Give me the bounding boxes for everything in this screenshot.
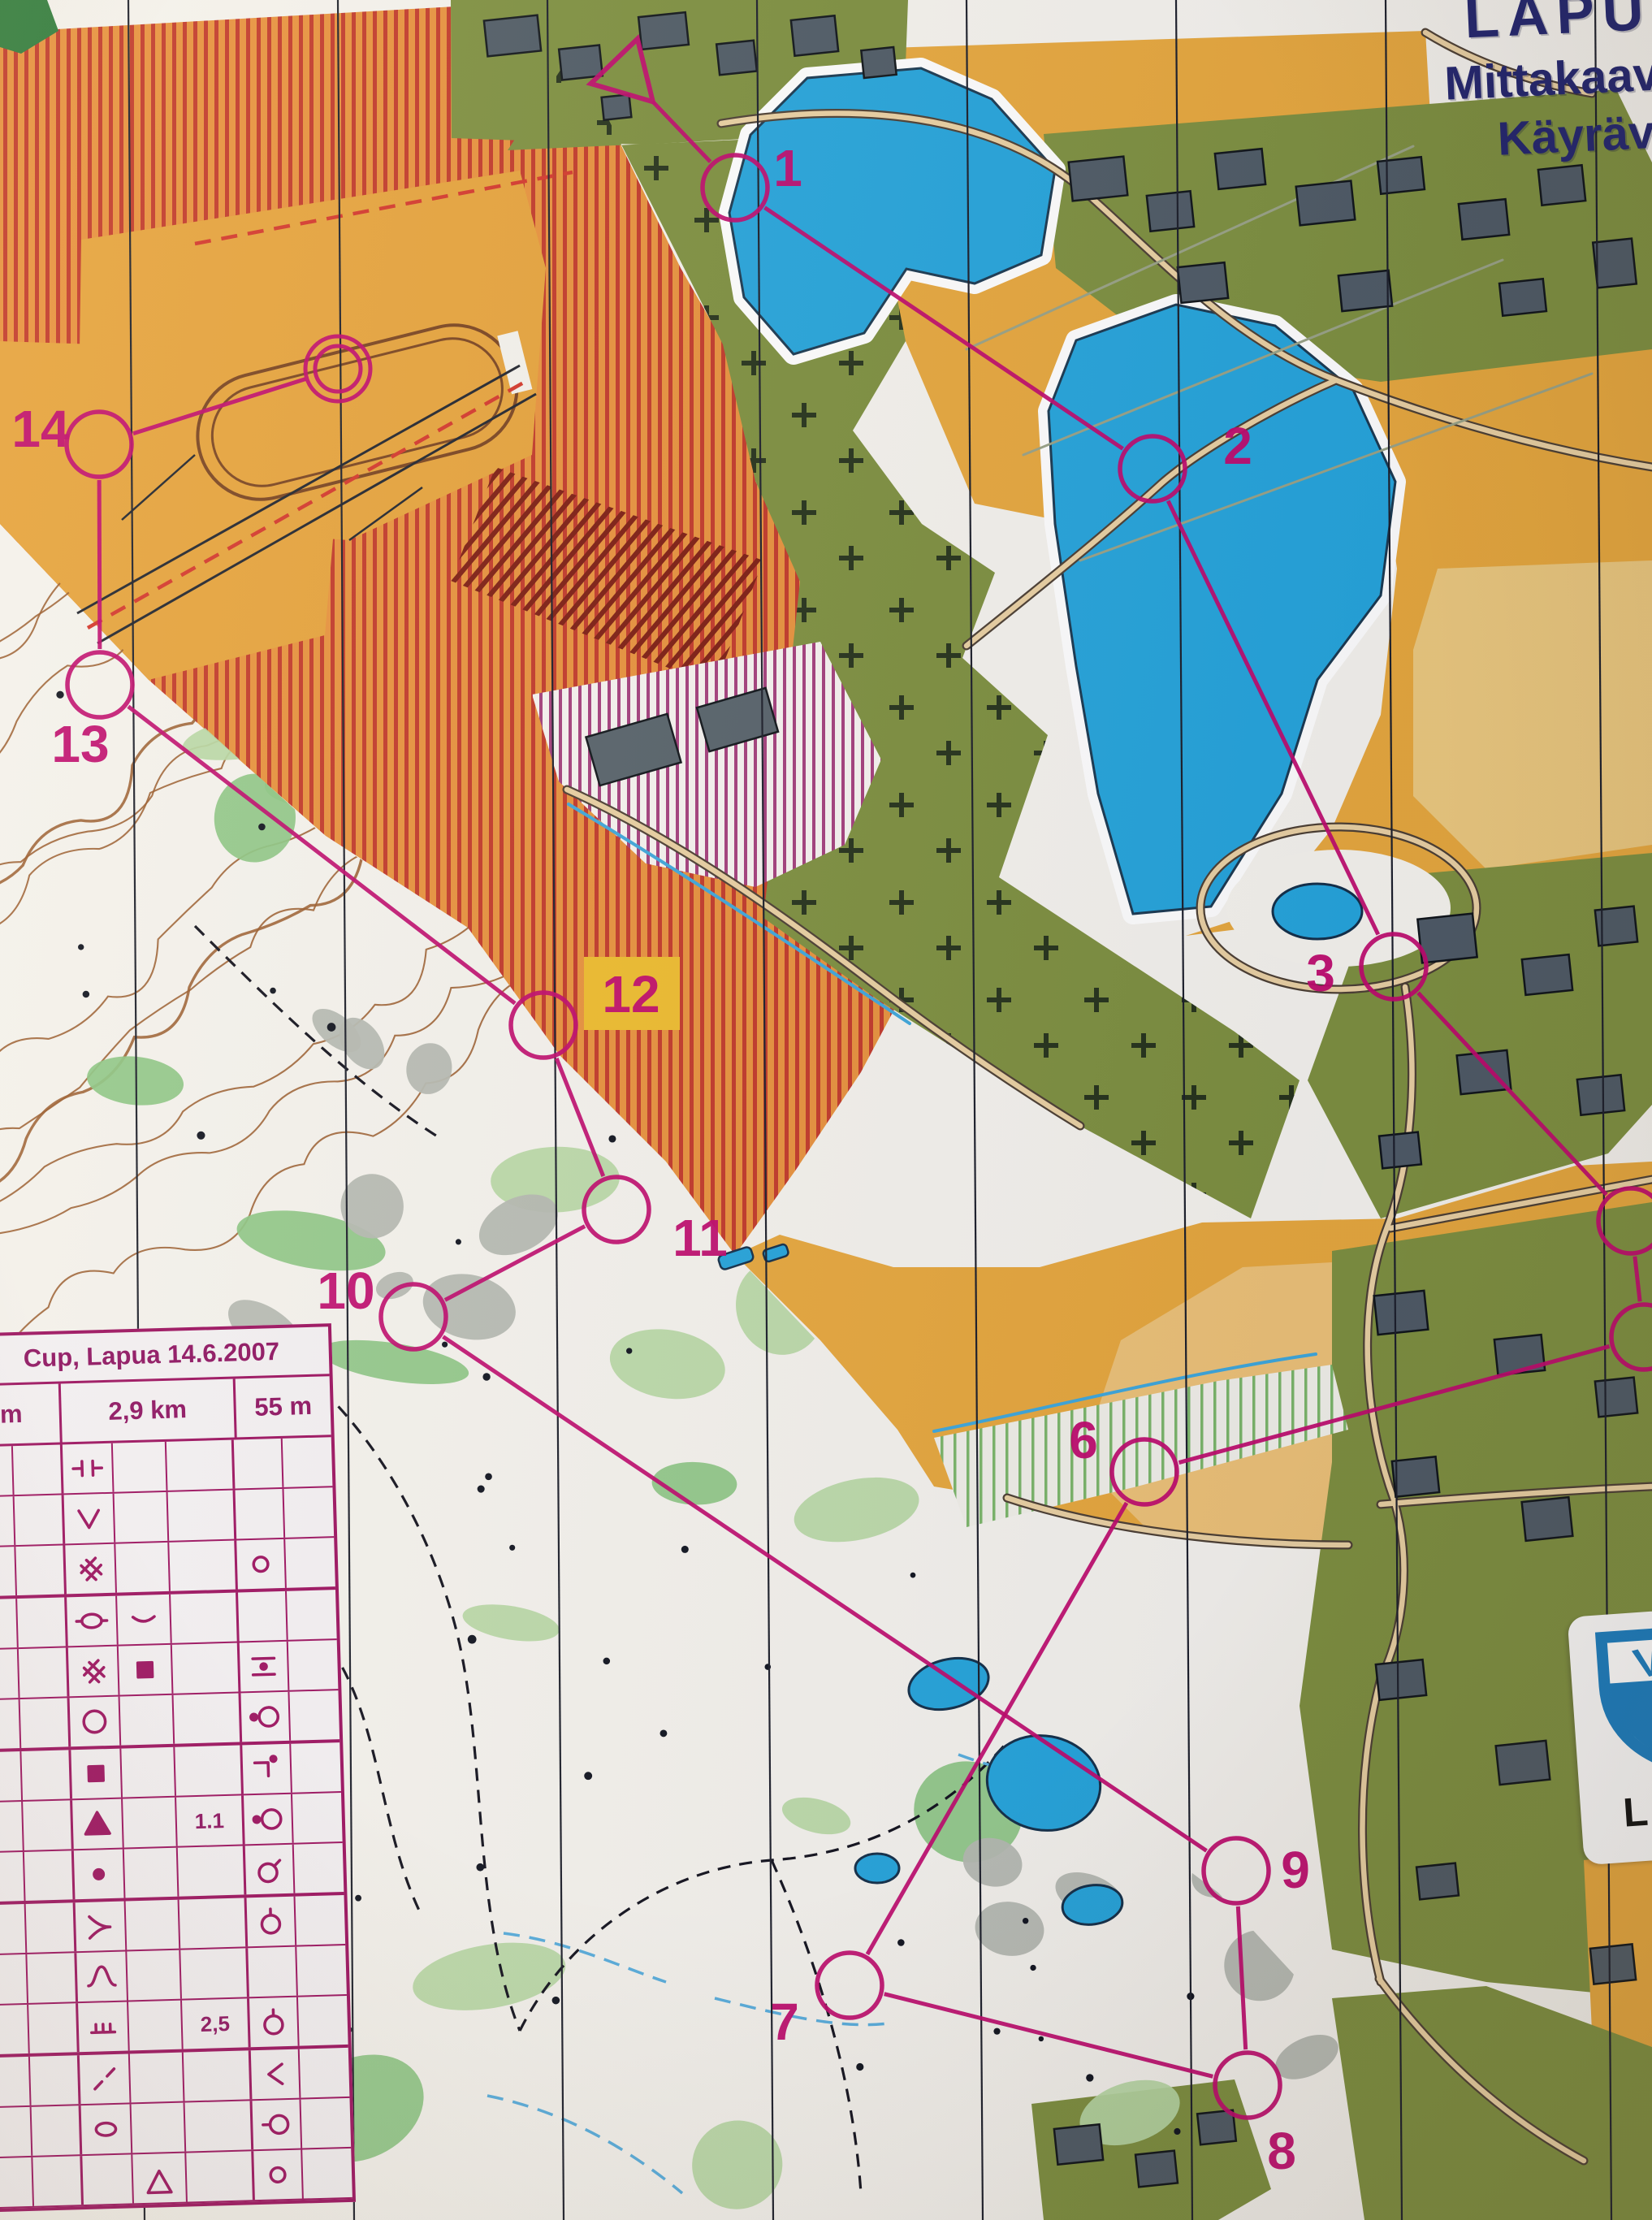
col-g — [245, 1845, 296, 1895]
symbol-circle — [76, 1703, 113, 1740]
symbol-square — [78, 1755, 115, 1792]
col-b — [21, 1750, 72, 1800]
col-d — [115, 1492, 170, 1543]
symbol-triangle — [79, 1806, 115, 1842]
pond-ring — [1273, 884, 1362, 939]
col-h — [294, 1843, 344, 1893]
col-h — [292, 1793, 343, 1843]
course-summary-row: m 2,9 km 55 m — [0, 1376, 331, 1448]
symbol-wall — [84, 2009, 121, 2045]
col-g — [253, 2150, 304, 2201]
col-ef — [166, 1440, 236, 1491]
control-number-14: 14 — [11, 400, 70, 458]
col-g — [236, 1539, 287, 1590]
col-a — [0, 1547, 17, 1597]
col-h — [291, 1742, 341, 1793]
col-c — [82, 2154, 134, 2205]
symbol-square — [127, 1651, 163, 1688]
symbol-circle-tick-w — [258, 2106, 295, 2143]
col-h — [283, 1487, 334, 1538]
col-h — [296, 1895, 346, 1945]
symbol-crossing — [69, 1450, 106, 1486]
col-d — [128, 2001, 184, 2051]
col-b — [27, 1953, 78, 2003]
col-a — [0, 1649, 20, 1699]
col-b — [30, 2055, 81, 2105]
col-h — [288, 1640, 339, 1690]
control-number-7: 7 — [770, 1993, 799, 2051]
course-climb: 55 m — [236, 1376, 331, 1437]
col-b — [19, 1647, 70, 1698]
col-b — [13, 1444, 64, 1495]
col-c — [68, 1647, 120, 1697]
symbol-hill — [84, 1958, 120, 1995]
description-row-15 — [0, 2149, 352, 2209]
symbol-between — [245, 1648, 282, 1685]
col-b — [15, 1495, 66, 1545]
col-ef — [184, 2050, 253, 2101]
symbol-circle-small — [259, 2157, 296, 2193]
col-c — [76, 1951, 128, 2001]
col-d — [119, 1645, 174, 1695]
symbol-dot-circle — [249, 1801, 286, 1837]
col-b — [15, 1545, 67, 1595]
col-b — [26, 1902, 77, 1953]
col-g — [251, 2049, 301, 2100]
symbol-less — [257, 2056, 293, 2092]
col-ef — [180, 1948, 249, 1998]
col-d — [113, 1442, 168, 1492]
symbol-tri-open — [141, 2160, 178, 2196]
col-d — [115, 1543, 171, 1593]
col-ef — [179, 1898, 249, 1948]
col-h — [285, 1538, 335, 1588]
col-h — [283, 1437, 333, 1487]
col-d — [123, 1798, 178, 1848]
col-g — [244, 1794, 294, 1845]
col-c — [67, 1596, 119, 1647]
col-ef — [169, 1541, 238, 1591]
col-ef — [171, 1592, 240, 1642]
col-h — [300, 2048, 350, 2098]
header-fragment: m — [0, 1383, 63, 1444]
col-b — [24, 1850, 76, 1901]
control-number-12: 12 — [602, 965, 660, 1023]
col-d — [132, 2153, 188, 2204]
symbol-oval — [88, 2111, 124, 2148]
control-number-11: 11 — [672, 1209, 728, 1267]
col-a — [0, 1852, 26, 1902]
symbol-dashes — [86, 2061, 123, 2097]
col-g — [248, 1947, 298, 1997]
col-ef: 2,5 — [182, 1998, 251, 2049]
col-b — [32, 2156, 84, 2206]
col-d — [127, 1950, 182, 2001]
symbol-hash — [75, 1653, 111, 1690]
logo-letter: L — [1621, 1788, 1650, 1837]
col-g — [234, 1439, 284, 1489]
control-number-10: 10 — [317, 1261, 374, 1320]
col-c — [81, 2104, 133, 2154]
col-a — [0, 1802, 24, 1852]
col-a — [0, 1699, 21, 1750]
symbol-circle-tick-n — [255, 2004, 292, 2040]
symbol-curve — [125, 1601, 162, 1638]
col-h — [298, 1996, 348, 2046]
col-g — [236, 1489, 286, 1539]
col-h — [301, 2098, 351, 2149]
control-number-8: 8 — [1267, 2122, 1296, 2180]
col-a — [0, 1751, 23, 1802]
col-d — [124, 1848, 179, 1898]
symbol-hash — [72, 1551, 109, 1587]
col-c — [71, 1749, 123, 1799]
col-c — [74, 1850, 126, 1900]
col-g — [247, 1897, 297, 1947]
course-distance: 2,9 km — [61, 1378, 237, 1442]
control-number-13: 13 — [51, 715, 109, 773]
col-g — [242, 1744, 292, 1794]
col-d — [121, 1747, 176, 1798]
col-g — [253, 2100, 303, 2150]
col-g — [249, 1997, 300, 2048]
col-b — [17, 1597, 68, 1647]
col-g — [238, 1591, 288, 1642]
col-a — [0, 2107, 32, 2157]
symbol-dot — [80, 1856, 117, 1893]
col-c — [78, 2001, 130, 2052]
col-ef — [178, 1846, 247, 1896]
col-a — [0, 1954, 28, 2005]
col-h — [302, 2149, 352, 2199]
symbol-circle-small — [242, 1546, 279, 1582]
control-description-rows: 1.12,5 — [0, 1437, 352, 2209]
col-c — [80, 2053, 132, 2104]
col-d — [120, 1695, 175, 1746]
col-h — [296, 1945, 347, 1996]
symbol-vee — [71, 1500, 107, 1537]
col-b — [23, 1800, 74, 1850]
col-c — [72, 1799, 124, 1850]
col-d — [132, 2103, 187, 2153]
symbol-bend-dot — [248, 1750, 284, 1787]
col-ef — [172, 1642, 241, 1693]
col-a — [0, 1904, 27, 1954]
col-g — [240, 1642, 290, 1692]
col-c — [70, 1697, 122, 1747]
control-number-2: 2 — [1223, 417, 1252, 475]
orienteering-map-photo: 12367891011121314 Cup, Lapua 14.6.2007 m… — [0, 0, 1652, 2220]
col-ef — [185, 2101, 254, 2151]
control-number-6: 6 — [1069, 1411, 1098, 1469]
col-a — [0, 1496, 15, 1547]
col-a — [0, 1446, 15, 1496]
control-description-sheet: Cup, Lapua 14.6.2007 m 2,9 km 55 m 1.12,… — [0, 1323, 356, 2212]
col-g — [240, 1692, 291, 1742]
col-b — [28, 2003, 80, 2053]
col-ef: 1.1 — [176, 1795, 245, 1846]
club-shield-icon: VI — [1568, 1607, 1652, 1788]
control-number-1: 1 — [773, 139, 802, 197]
col-a — [0, 2157, 34, 2208]
col-b — [20, 1698, 71, 1748]
col-a — [0, 2005, 30, 2055]
symbol-circle-tick-n — [253, 1903, 289, 1940]
col-ef — [175, 1745, 244, 1795]
map-name: LAPUA — [1440, 0, 1652, 52]
control-number-3: 3 — [1306, 944, 1335, 1002]
col-ef — [168, 1491, 237, 1541]
symbol-oval-ticks — [73, 1603, 110, 1639]
col-ef — [186, 2151, 255, 2201]
open-field-pale — [1413, 560, 1652, 869]
pond-3 — [855, 1854, 899, 1883]
col-c — [64, 1494, 116, 1544]
col-d — [117, 1595, 172, 1645]
col-c — [63, 1443, 115, 1494]
col-h — [289, 1690, 339, 1741]
col-c — [76, 1902, 128, 1952]
col-a — [0, 1599, 19, 1649]
col-d — [130, 2053, 185, 2103]
symbol-junction — [82, 1908, 119, 1945]
map-title-block: LAPUA Mittakaava Käyräväli — [1440, 0, 1652, 168]
col-a — [0, 2057, 32, 2107]
col-h — [287, 1590, 337, 1640]
col-c — [65, 1544, 117, 1595]
col-d — [126, 1900, 181, 1950]
symbol-dot-circle — [247, 1699, 283, 1735]
col-b — [32, 2105, 83, 2156]
symbol-circle-tick-ne — [251, 1851, 288, 1888]
col-ef — [174, 1693, 243, 1743]
control-number-9: 9 — [1281, 1841, 1310, 1899]
